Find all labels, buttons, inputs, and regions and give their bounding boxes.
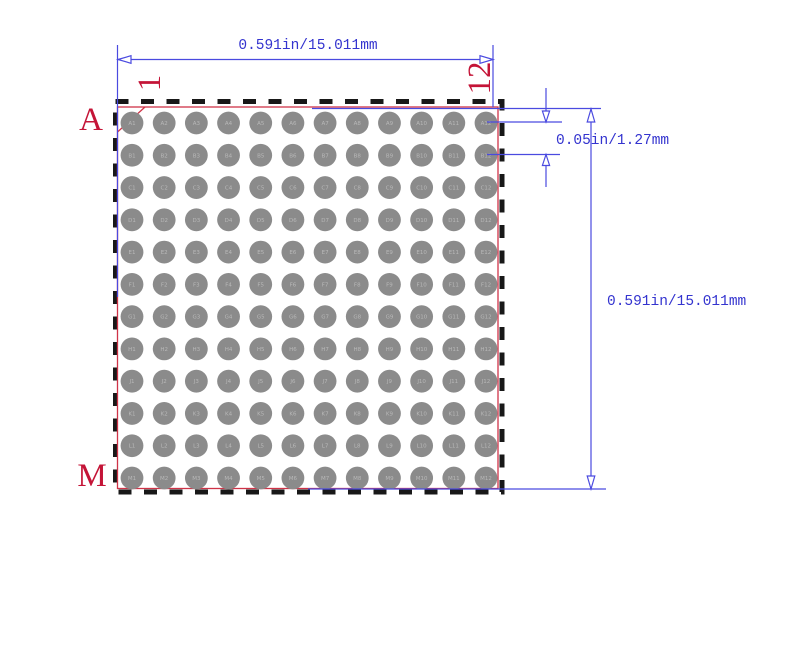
ball-label-C12: C12 xyxy=(481,186,492,192)
ball-label-M6: M6 xyxy=(289,476,298,482)
ball-label-A8: A8 xyxy=(354,121,362,127)
ball-label-F7: F7 xyxy=(322,282,329,288)
ball-label-C1: C1 xyxy=(128,186,135,192)
ball-label-B7: B7 xyxy=(321,153,329,159)
ball-label-D3: D3 xyxy=(192,218,200,224)
ball-label-D5: D5 xyxy=(257,218,265,224)
ball-label-A1: A1 xyxy=(128,121,135,127)
ball-label-A4: A4 xyxy=(225,121,233,127)
ball-label-M8: M8 xyxy=(353,476,362,482)
dim-top-label: 0.591in/15.011mm xyxy=(238,38,377,54)
ball-label-C2: C2 xyxy=(161,186,168,192)
ball-label-F10: F10 xyxy=(417,282,428,288)
ball-label-E11: E11 xyxy=(449,250,459,256)
ball-label-L3: L3 xyxy=(193,444,200,450)
ball-label-F4: F4 xyxy=(225,282,232,288)
ball-label-H3: H3 xyxy=(193,347,201,353)
ball-label-K4: K4 xyxy=(225,411,233,417)
ball-label-E4: E4 xyxy=(225,250,232,256)
ball-label-L5: L5 xyxy=(257,444,264,450)
ball-label-D6: D6 xyxy=(289,218,297,224)
ball-label-J2: J2 xyxy=(161,379,167,385)
ball-label-J11: J11 xyxy=(449,379,459,385)
ball-label-J9: J9 xyxy=(386,379,393,385)
ball-label-J7: J7 xyxy=(322,379,329,385)
ball-label-J3: J3 xyxy=(193,379,200,385)
ball-label-L9: L9 xyxy=(386,444,393,450)
ball-label-F12: F12 xyxy=(481,282,491,288)
ball-label-C10: C10 xyxy=(416,186,427,192)
ball-label-F5: F5 xyxy=(257,282,264,288)
ball-label-G12: G12 xyxy=(480,315,491,321)
package-outline xyxy=(118,107,499,489)
footprint-canvas: A1A2A3A4A5A6A7A8A9A10A11A12B1B2B3B4B5B6B… xyxy=(0,0,800,650)
ball-label-B11: B11 xyxy=(448,153,459,159)
ball-label-A5: A5 xyxy=(257,121,265,127)
ball-label-F6: F6 xyxy=(290,282,297,288)
ball-label-C8: C8 xyxy=(354,186,362,192)
ball-label-L11: L11 xyxy=(449,444,459,450)
ball-label-K11: K11 xyxy=(449,411,460,417)
ball-label-J8: J8 xyxy=(354,379,361,385)
ball-label-D8: D8 xyxy=(353,218,361,224)
ball-label-F1: F1 xyxy=(129,282,136,288)
ball-label-F9: F9 xyxy=(386,282,393,288)
ball-label-D12: D12 xyxy=(480,218,491,224)
ball-label-B8: B8 xyxy=(354,153,362,159)
row-last-label: M xyxy=(77,458,106,494)
ball-label-D1: D1 xyxy=(128,218,136,224)
footprint-diagram: A1A2A3A4A5A6A7A8A9A10A11A12B1B2B3B4B5B6B… xyxy=(0,0,800,650)
ball-label-L1: L1 xyxy=(129,444,136,450)
ball-label-E7: E7 xyxy=(322,250,329,256)
ball-label-K2: K2 xyxy=(161,411,168,417)
ball-label-G1: G1 xyxy=(128,315,136,321)
ball-label-B2: B2 xyxy=(161,153,168,159)
ball-label-H6: H6 xyxy=(289,347,297,353)
ball-label-K8: K8 xyxy=(354,411,362,417)
ball-label-G5: G5 xyxy=(257,315,265,321)
ball-label-B9: B9 xyxy=(386,153,394,159)
ball-label-M10: M10 xyxy=(416,476,428,482)
ball-grid: A1A2A3A4A5A6A7A8A9A10A11A12B1B2B3B4B5B6B… xyxy=(121,112,498,490)
ball-label-G11: G11 xyxy=(448,315,459,321)
ball-label-H10: H10 xyxy=(416,347,428,353)
ball-label-L10: L10 xyxy=(417,444,428,450)
ball-label-J4: J4 xyxy=(225,379,232,385)
col-first-label: 1 xyxy=(132,75,168,92)
ball-label-D2: D2 xyxy=(160,218,168,224)
dim-right-label: 0.591in/15.011mm xyxy=(607,294,746,310)
dim-pitch-label: 0.05in/1.27mm xyxy=(556,133,669,149)
ball-label-H4: H4 xyxy=(225,347,233,353)
ball-label-J5: J5 xyxy=(257,379,264,385)
ball-label-J12: J12 xyxy=(481,379,491,385)
ball-label-G2: G2 xyxy=(160,315,168,321)
row-first-label: A xyxy=(79,102,103,138)
ball-label-K12: K12 xyxy=(481,411,492,417)
dim-pitch-arrow-up xyxy=(542,155,549,166)
ball-label-E6: E6 xyxy=(289,250,296,256)
dim-right-arrow-top xyxy=(587,109,595,122)
ball-label-E1: E1 xyxy=(129,250,136,256)
ball-label-A11: A11 xyxy=(448,121,459,127)
ball-label-D4: D4 xyxy=(225,218,233,224)
ball-label-H8: H8 xyxy=(353,347,361,353)
ball-label-F11: F11 xyxy=(449,282,459,288)
dim-right-arrow-bottom xyxy=(587,476,595,489)
ball-label-K5: K5 xyxy=(257,411,265,417)
ball-label-H12: H12 xyxy=(480,347,491,353)
ball-label-C7: C7 xyxy=(321,186,329,192)
ball-label-H1: H1 xyxy=(128,347,136,353)
ball-label-C6: C6 xyxy=(289,186,297,192)
ball-label-E8: E8 xyxy=(354,250,361,256)
ball-label-M5: M5 xyxy=(257,476,266,482)
ball-label-E5: E5 xyxy=(257,250,264,256)
ball-label-H9: H9 xyxy=(386,347,394,353)
ball-label-K3: K3 xyxy=(193,411,201,417)
ball-label-L7: L7 xyxy=(322,444,329,450)
ball-label-A9: A9 xyxy=(386,121,394,127)
ball-label-G7: G7 xyxy=(321,315,329,321)
ball-label-G8: G8 xyxy=(353,315,361,321)
ball-label-F3: F3 xyxy=(193,282,200,288)
ball-label-B5: B5 xyxy=(257,153,265,159)
ball-label-D10: D10 xyxy=(416,218,428,224)
ball-label-L4: L4 xyxy=(225,444,232,450)
ball-label-C3: C3 xyxy=(193,186,201,192)
ball-label-K6: K6 xyxy=(289,411,297,417)
ball-label-G4: G4 xyxy=(225,315,233,321)
ball-label-J10: J10 xyxy=(416,379,426,385)
ball-label-M12: M12 xyxy=(480,476,492,482)
ball-label-B6: B6 xyxy=(289,153,297,159)
ball-label-G9: G9 xyxy=(386,315,394,321)
ball-label-E2: E2 xyxy=(161,250,168,256)
ball-label-L6: L6 xyxy=(290,444,297,450)
ball-label-D7: D7 xyxy=(321,218,329,224)
ball-label-F2: F2 xyxy=(161,282,168,288)
ball-label-L12: L12 xyxy=(481,444,491,450)
dim-top-arrow-left xyxy=(118,56,131,64)
ball-label-M4: M4 xyxy=(224,476,233,482)
dim-pitch-arrow-down xyxy=(542,111,549,122)
ball-label-A10: A10 xyxy=(416,121,427,127)
ball-label-J1: J1 xyxy=(128,379,134,385)
ball-label-L8: L8 xyxy=(354,444,361,450)
ball-label-M7: M7 xyxy=(321,476,330,482)
ball-label-A7: A7 xyxy=(321,121,329,127)
ball-label-M11: M11 xyxy=(448,476,460,482)
ball-label-J6: J6 xyxy=(289,379,296,385)
ball-label-L2: L2 xyxy=(161,444,168,450)
col-last-label: 12 xyxy=(462,62,498,95)
ball-label-B3: B3 xyxy=(193,153,201,159)
ball-label-A6: A6 xyxy=(289,121,297,127)
ball-label-C9: C9 xyxy=(386,186,394,192)
ball-label-K10: K10 xyxy=(416,411,427,417)
ball-label-G10: G10 xyxy=(416,315,428,321)
ball-label-E12: E12 xyxy=(481,250,491,256)
ball-label-A2: A2 xyxy=(161,121,168,127)
ball-label-H11: H11 xyxy=(448,347,459,353)
ball-label-G3: G3 xyxy=(192,315,200,321)
ball-label-M9: M9 xyxy=(385,476,394,482)
ball-label-G6: G6 xyxy=(289,315,297,321)
ball-label-D11: D11 xyxy=(448,218,459,224)
ball-label-A3: A3 xyxy=(193,121,201,127)
ball-label-E9: E9 xyxy=(386,250,393,256)
ball-label-M3: M3 xyxy=(192,476,201,482)
ball-label-C5: C5 xyxy=(257,186,265,192)
ball-label-E10: E10 xyxy=(416,250,427,256)
ball-label-M1: M1 xyxy=(128,476,136,482)
ball-label-B10: B10 xyxy=(416,153,427,159)
ball-label-B4: B4 xyxy=(225,153,233,159)
ball-label-C4: C4 xyxy=(225,186,233,192)
ball-label-F8: F8 xyxy=(354,282,361,288)
ball-label-H7: H7 xyxy=(321,347,329,353)
ball-label-D9: D9 xyxy=(386,218,394,224)
ball-label-H5: H5 xyxy=(257,347,265,353)
ball-label-K1: K1 xyxy=(128,411,135,417)
ball-label-K7: K7 xyxy=(322,411,330,417)
ball-label-M2: M2 xyxy=(160,476,168,482)
ball-label-C11: C11 xyxy=(448,186,459,192)
ball-label-E3: E3 xyxy=(193,250,200,256)
ball-label-B1: B1 xyxy=(128,153,135,159)
ball-label-H2: H2 xyxy=(160,347,168,353)
ball-label-K9: K9 xyxy=(386,411,394,417)
